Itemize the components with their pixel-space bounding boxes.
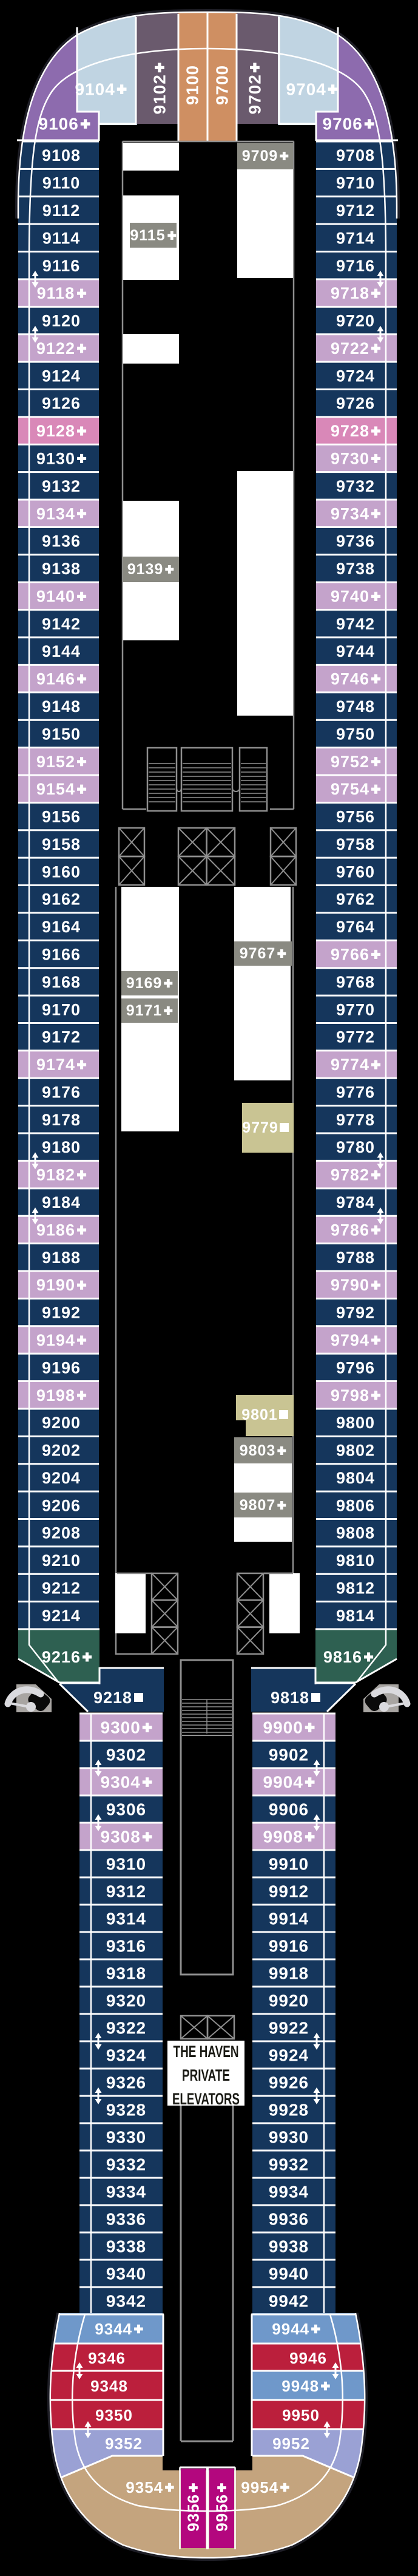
svg-text:9152: 9152 [36, 753, 75, 771]
svg-text:9212: 9212 [42, 1579, 81, 1597]
svg-text:9806: 9806 [336, 1496, 375, 1514]
svg-text:9742: 9742 [336, 615, 375, 633]
svg-text:9818: 9818 [271, 1689, 309, 1707]
svg-text:9920: 9920 [269, 1991, 309, 2010]
svg-text:9748: 9748 [336, 697, 375, 716]
svg-text:9709: 9709 [242, 147, 278, 164]
svg-text:9140: 9140 [36, 587, 75, 605]
svg-text:9334: 9334 [106, 2183, 146, 2201]
svg-text:9306: 9306 [106, 1800, 146, 1819]
svg-text:9732: 9732 [336, 477, 375, 495]
svg-text:9756: 9756 [336, 808, 375, 826]
svg-text:9198: 9198 [36, 1386, 75, 1405]
svg-text:9188: 9188 [42, 1249, 81, 1267]
svg-text:9344: 9344 [95, 2320, 132, 2338]
svg-text:9172: 9172 [42, 1028, 81, 1046]
svg-text:9726: 9726 [336, 395, 375, 413]
svg-text:9170: 9170 [42, 1000, 81, 1019]
svg-text:9912: 9912 [269, 1882, 309, 1901]
svg-text:9704: 9704 [286, 80, 326, 99]
svg-text:THE HAVEN: THE HAVEN [174, 2042, 239, 2061]
svg-text:9946: 9946 [289, 2349, 327, 2367]
svg-text:9210: 9210 [42, 1551, 81, 1570]
svg-text:ELEVATORS: ELEVATORS [172, 2090, 240, 2108]
svg-text:9128: 9128 [36, 422, 75, 440]
svg-text:9812: 9812 [336, 1579, 375, 1597]
svg-text:9740: 9740 [331, 587, 369, 605]
svg-text:9736: 9736 [336, 532, 375, 551]
svg-text:9924: 9924 [269, 2046, 309, 2065]
svg-text:9150: 9150 [42, 725, 81, 743]
svg-text:9928: 9928 [269, 2101, 309, 2120]
svg-text:9764: 9764 [336, 918, 375, 936]
svg-text:9340: 9340 [106, 2265, 146, 2283]
svg-text:9956: 9956 [213, 2494, 231, 2532]
svg-text:9308: 9308 [101, 1828, 141, 1846]
svg-text:9200: 9200 [42, 1414, 81, 1432]
svg-text:9720: 9720 [336, 312, 375, 330]
svg-text:9760: 9760 [336, 863, 375, 881]
svg-text:9320: 9320 [106, 1991, 146, 2010]
svg-text:9122: 9122 [36, 339, 75, 358]
svg-text:9154: 9154 [36, 780, 75, 798]
svg-text:9734: 9734 [331, 504, 369, 523]
svg-text:9300: 9300 [101, 1718, 141, 1737]
svg-text:9164: 9164 [42, 918, 81, 936]
svg-text:9900: 9900 [263, 1718, 303, 1737]
svg-text:9904: 9904 [263, 1773, 303, 1792]
svg-text:9118: 9118 [37, 284, 75, 302]
svg-text:9712: 9712 [336, 202, 375, 220]
svg-text:9312: 9312 [106, 1882, 146, 1901]
svg-text:9115: 9115 [130, 227, 165, 244]
svg-text:9108: 9108 [42, 146, 81, 164]
svg-text:9786: 9786 [331, 1221, 369, 1239]
svg-text:9346: 9346 [88, 2349, 126, 2367]
svg-text:9126: 9126 [42, 395, 81, 413]
svg-text:9730: 9730 [331, 449, 369, 467]
svg-text:9218: 9218 [93, 1689, 132, 1707]
svg-text:9184: 9184 [42, 1193, 81, 1212]
svg-text:9160: 9160 [42, 863, 81, 881]
svg-text:9938: 9938 [269, 2237, 309, 2256]
svg-text:9302: 9302 [106, 1746, 146, 1764]
svg-text:9110: 9110 [42, 174, 81, 192]
svg-text:9354: 9354 [126, 2478, 163, 2496]
svg-text:9322: 9322 [106, 2019, 146, 2038]
svg-text:9914: 9914 [269, 1910, 309, 1928]
svg-text:9794: 9794 [331, 1331, 369, 1349]
svg-text:9216: 9216 [42, 1648, 81, 1666]
svg-text:9700: 9700 [213, 65, 232, 105]
svg-text:9120: 9120 [42, 312, 81, 330]
svg-text:9104: 9104 [75, 80, 115, 99]
svg-text:9768: 9768 [336, 973, 375, 991]
svg-text:9792: 9792 [336, 1304, 375, 1322]
svg-text:9804: 9804 [336, 1469, 375, 1487]
svg-text:9356: 9356 [184, 2494, 203, 2532]
svg-text:9196: 9196 [42, 1358, 81, 1377]
svg-text:9788: 9788 [336, 1249, 375, 1267]
svg-text:PRIVATE: PRIVATE [182, 2066, 230, 2084]
svg-text:9702: 9702 [246, 74, 265, 114]
svg-text:9106: 9106 [39, 115, 79, 134]
svg-text:9780: 9780 [336, 1138, 375, 1156]
svg-text:9142: 9142 [42, 615, 81, 633]
svg-text:9767: 9767 [240, 945, 276, 962]
svg-text:9728: 9728 [331, 422, 369, 440]
svg-text:9192: 9192 [42, 1304, 81, 1322]
svg-text:9330: 9330 [106, 2128, 146, 2147]
svg-text:9782: 9782 [331, 1166, 369, 1184]
svg-text:9316: 9316 [106, 1937, 146, 1956]
svg-text:9132: 9132 [42, 477, 81, 495]
svg-text:9178: 9178 [42, 1111, 81, 1129]
svg-text:9906: 9906 [269, 1800, 309, 1819]
svg-text:9134: 9134 [36, 504, 75, 523]
svg-text:9754: 9754 [331, 780, 369, 798]
svg-text:9350: 9350 [95, 2406, 133, 2424]
svg-text:9156: 9156 [42, 808, 81, 826]
svg-text:9934: 9934 [269, 2183, 309, 2201]
svg-text:9169: 9169 [126, 975, 163, 992]
svg-text:9102: 9102 [150, 74, 169, 114]
svg-text:9100: 9100 [183, 65, 202, 105]
svg-text:9114: 9114 [42, 229, 81, 247]
svg-text:9801: 9801 [241, 1406, 278, 1423]
svg-text:9808: 9808 [336, 1524, 375, 1542]
svg-text:9352: 9352 [105, 2435, 143, 2453]
svg-text:9182: 9182 [36, 1166, 75, 1184]
svg-text:9204: 9204 [42, 1469, 81, 1487]
svg-text:9168: 9168 [42, 973, 81, 991]
svg-text:9908: 9908 [263, 1828, 303, 1846]
svg-text:9796: 9796 [336, 1358, 375, 1377]
svg-text:9790: 9790 [331, 1276, 369, 1294]
svg-text:9800: 9800 [336, 1414, 375, 1432]
svg-text:9342: 9342 [106, 2292, 146, 2311]
svg-text:9758: 9758 [336, 835, 375, 853]
svg-text:9112: 9112 [42, 202, 81, 220]
svg-text:9803: 9803 [240, 1442, 276, 1459]
svg-text:9750: 9750 [336, 725, 375, 743]
svg-text:9918: 9918 [269, 1964, 309, 1983]
svg-text:9948: 9948 [281, 2377, 319, 2395]
svg-text:9784: 9784 [336, 1193, 375, 1212]
svg-text:9206: 9206 [42, 1496, 81, 1514]
svg-text:9139: 9139 [127, 561, 164, 578]
svg-text:9816: 9816 [323, 1648, 362, 1666]
svg-text:9940: 9940 [269, 2265, 309, 2283]
svg-text:9746: 9746 [331, 670, 369, 688]
svg-text:9722: 9722 [331, 339, 369, 358]
svg-text:9766: 9766 [331, 946, 369, 964]
svg-text:9324: 9324 [106, 2046, 146, 2065]
svg-text:9778: 9778 [336, 1111, 375, 1129]
svg-text:9814: 9814 [336, 1607, 375, 1625]
svg-text:9194: 9194 [36, 1331, 75, 1349]
svg-text:9922: 9922 [269, 2019, 309, 2038]
svg-text:9774: 9774 [331, 1056, 369, 1074]
svg-text:9130: 9130 [36, 449, 75, 467]
svg-text:9166: 9166 [42, 946, 81, 964]
svg-text:9348: 9348 [90, 2377, 128, 2395]
svg-text:9328: 9328 [106, 2101, 146, 2120]
svg-text:9744: 9744 [336, 642, 375, 660]
svg-text:9776: 9776 [336, 1083, 375, 1101]
svg-text:9136: 9136 [42, 532, 81, 551]
svg-text:9930: 9930 [269, 2128, 309, 2147]
svg-text:9798: 9798 [331, 1386, 369, 1405]
svg-text:9954: 9954 [241, 2478, 278, 2496]
svg-text:9724: 9724 [336, 367, 375, 385]
svg-text:9310: 9310 [106, 1855, 146, 1874]
svg-text:9926: 9926 [269, 2073, 309, 2092]
svg-text:9190: 9190 [36, 1276, 75, 1294]
svg-text:9779: 9779 [242, 1119, 278, 1136]
svg-text:9706: 9706 [323, 115, 363, 134]
svg-text:9202: 9202 [42, 1442, 81, 1460]
svg-text:9116: 9116 [42, 257, 81, 275]
svg-text:9950: 9950 [282, 2406, 320, 2424]
svg-text:9332: 9332 [106, 2155, 146, 2174]
svg-text:9714: 9714 [336, 229, 375, 247]
svg-text:9810: 9810 [336, 1551, 375, 1570]
svg-text:9176: 9176 [42, 1083, 81, 1101]
svg-text:9944: 9944 [272, 2320, 309, 2338]
svg-text:9718: 9718 [331, 284, 369, 302]
svg-text:9180: 9180 [42, 1138, 81, 1156]
svg-text:9304: 9304 [101, 1773, 141, 1792]
svg-text:9144: 9144 [42, 642, 81, 660]
svg-text:9318: 9318 [106, 1964, 146, 1983]
svg-text:9214: 9214 [42, 1607, 81, 1625]
svg-text:9158: 9158 [42, 835, 81, 853]
svg-text:9208: 9208 [42, 1524, 81, 1542]
svg-text:9952: 9952 [272, 2435, 310, 2453]
svg-text:9772: 9772 [336, 1028, 375, 1046]
svg-text:9148: 9148 [42, 697, 81, 716]
svg-text:9708: 9708 [336, 146, 375, 164]
svg-text:9738: 9738 [336, 560, 375, 578]
svg-text:9162: 9162 [42, 890, 81, 909]
svg-text:9710: 9710 [336, 174, 375, 192]
svg-text:9186: 9186 [36, 1221, 75, 1239]
svg-text:9936: 9936 [269, 2210, 309, 2229]
svg-text:9124: 9124 [42, 367, 81, 385]
svg-text:9807: 9807 [240, 1497, 276, 1514]
svg-text:9171: 9171 [126, 1002, 163, 1019]
svg-text:9802: 9802 [336, 1442, 375, 1460]
svg-text:9336: 9336 [106, 2210, 146, 2229]
svg-text:9314: 9314 [106, 1910, 146, 1928]
svg-text:9174: 9174 [36, 1056, 75, 1074]
svg-text:9138: 9138 [42, 560, 81, 578]
svg-text:9932: 9932 [269, 2155, 309, 2174]
svg-text:9910: 9910 [269, 1855, 309, 1874]
svg-text:9770: 9770 [336, 1000, 375, 1019]
svg-text:9762: 9762 [336, 890, 375, 909]
svg-text:9716: 9716 [336, 257, 375, 275]
svg-text:9326: 9326 [106, 2073, 146, 2092]
svg-text:9916: 9916 [269, 1937, 309, 1956]
svg-text:9902: 9902 [269, 1746, 309, 1764]
svg-text:9338: 9338 [106, 2237, 146, 2256]
svg-text:9752: 9752 [331, 753, 369, 771]
svg-text:9942: 9942 [269, 2292, 309, 2311]
svg-text:9146: 9146 [36, 670, 75, 688]
